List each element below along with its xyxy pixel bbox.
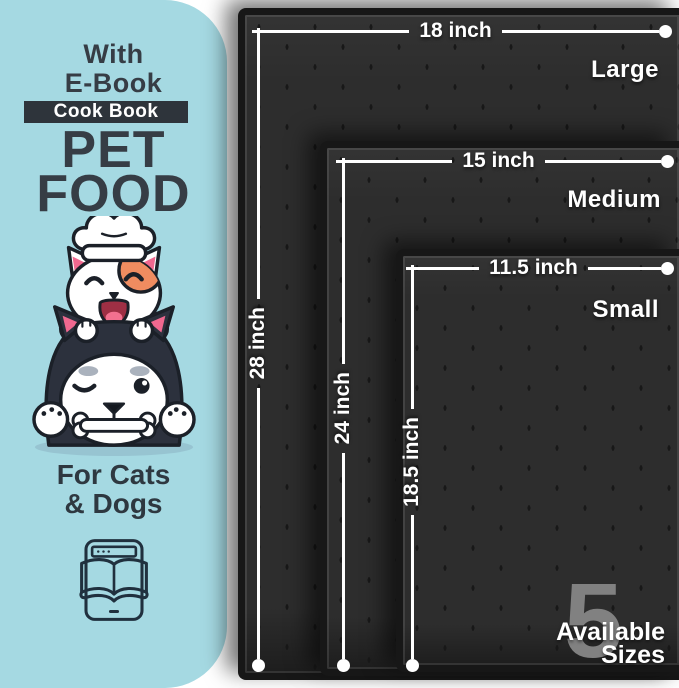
measure-endpoint-dot [252,659,265,672]
dim-height-medium-label: 24 inch [331,364,355,452]
measure-line [545,160,661,163]
mascot-illustration [24,216,204,458]
measure-endpoint-dot [661,262,674,275]
measure-line [411,265,414,409]
product-infographic: With E-Book Cook Book PET FOOD [0,0,679,688]
title-food: FOOD [0,168,227,220]
size-label-medium: Medium [567,186,661,214]
dim-width-large: 18 inch [252,24,672,38]
with-ebook-line1: With [0,40,227,69]
size-label-small: Small [592,296,659,324]
cat-and-dog-chef-mascot [24,216,204,463]
measure-endpoint-dot [337,659,350,672]
dim-width-medium-label: 15 inch [452,149,544,173]
measure-endpoint-dot [661,155,674,168]
ebook-icon-svg [77,538,151,622]
measure-line [588,267,661,270]
measure-line [342,453,345,659]
cookbook-badge: Cook Book [24,101,188,123]
measure-endpoint-dot [659,25,672,38]
info-panel: With E-Book Cook Book PET FOOD [0,0,227,688]
audience-heading: For Cats & Dogs [0,460,227,518]
dim-height-large-label: 28 inch [246,299,270,387]
measure-line [342,158,345,364]
measure-line [252,30,409,33]
measure-line [502,30,659,33]
dim-width-small-label: 11.5 inch [479,256,588,280]
size-label-large: Large [591,56,659,84]
dim-height-large: 28 inch [251,28,265,672]
dim-height-medium: 24 inch [336,158,350,672]
measure-line [257,388,260,659]
measure-line [336,160,452,163]
dim-height-small-label: 18.5 inch [400,409,424,515]
dim-width-small: 11.5 inch [406,261,674,275]
audience-line1: For Cats [0,460,227,489]
dim-height-small: 18.5 inch [405,265,419,672]
measure-endpoint-dot [406,659,419,672]
measure-line [257,28,260,299]
dim-width-medium: 15 inch [336,154,674,168]
ebook-tablet-icon [77,538,151,627]
audience-line2: & Dogs [0,489,227,518]
dim-width-large-label: 18 inch [409,19,501,43]
with-ebook-line2: E-Book [0,69,227,98]
available-sizes-label: Available Sizes [556,621,665,669]
with-ebook-heading: With E-Book [0,40,227,98]
measure-line [411,515,414,659]
available-line2: Sizes [556,644,665,668]
